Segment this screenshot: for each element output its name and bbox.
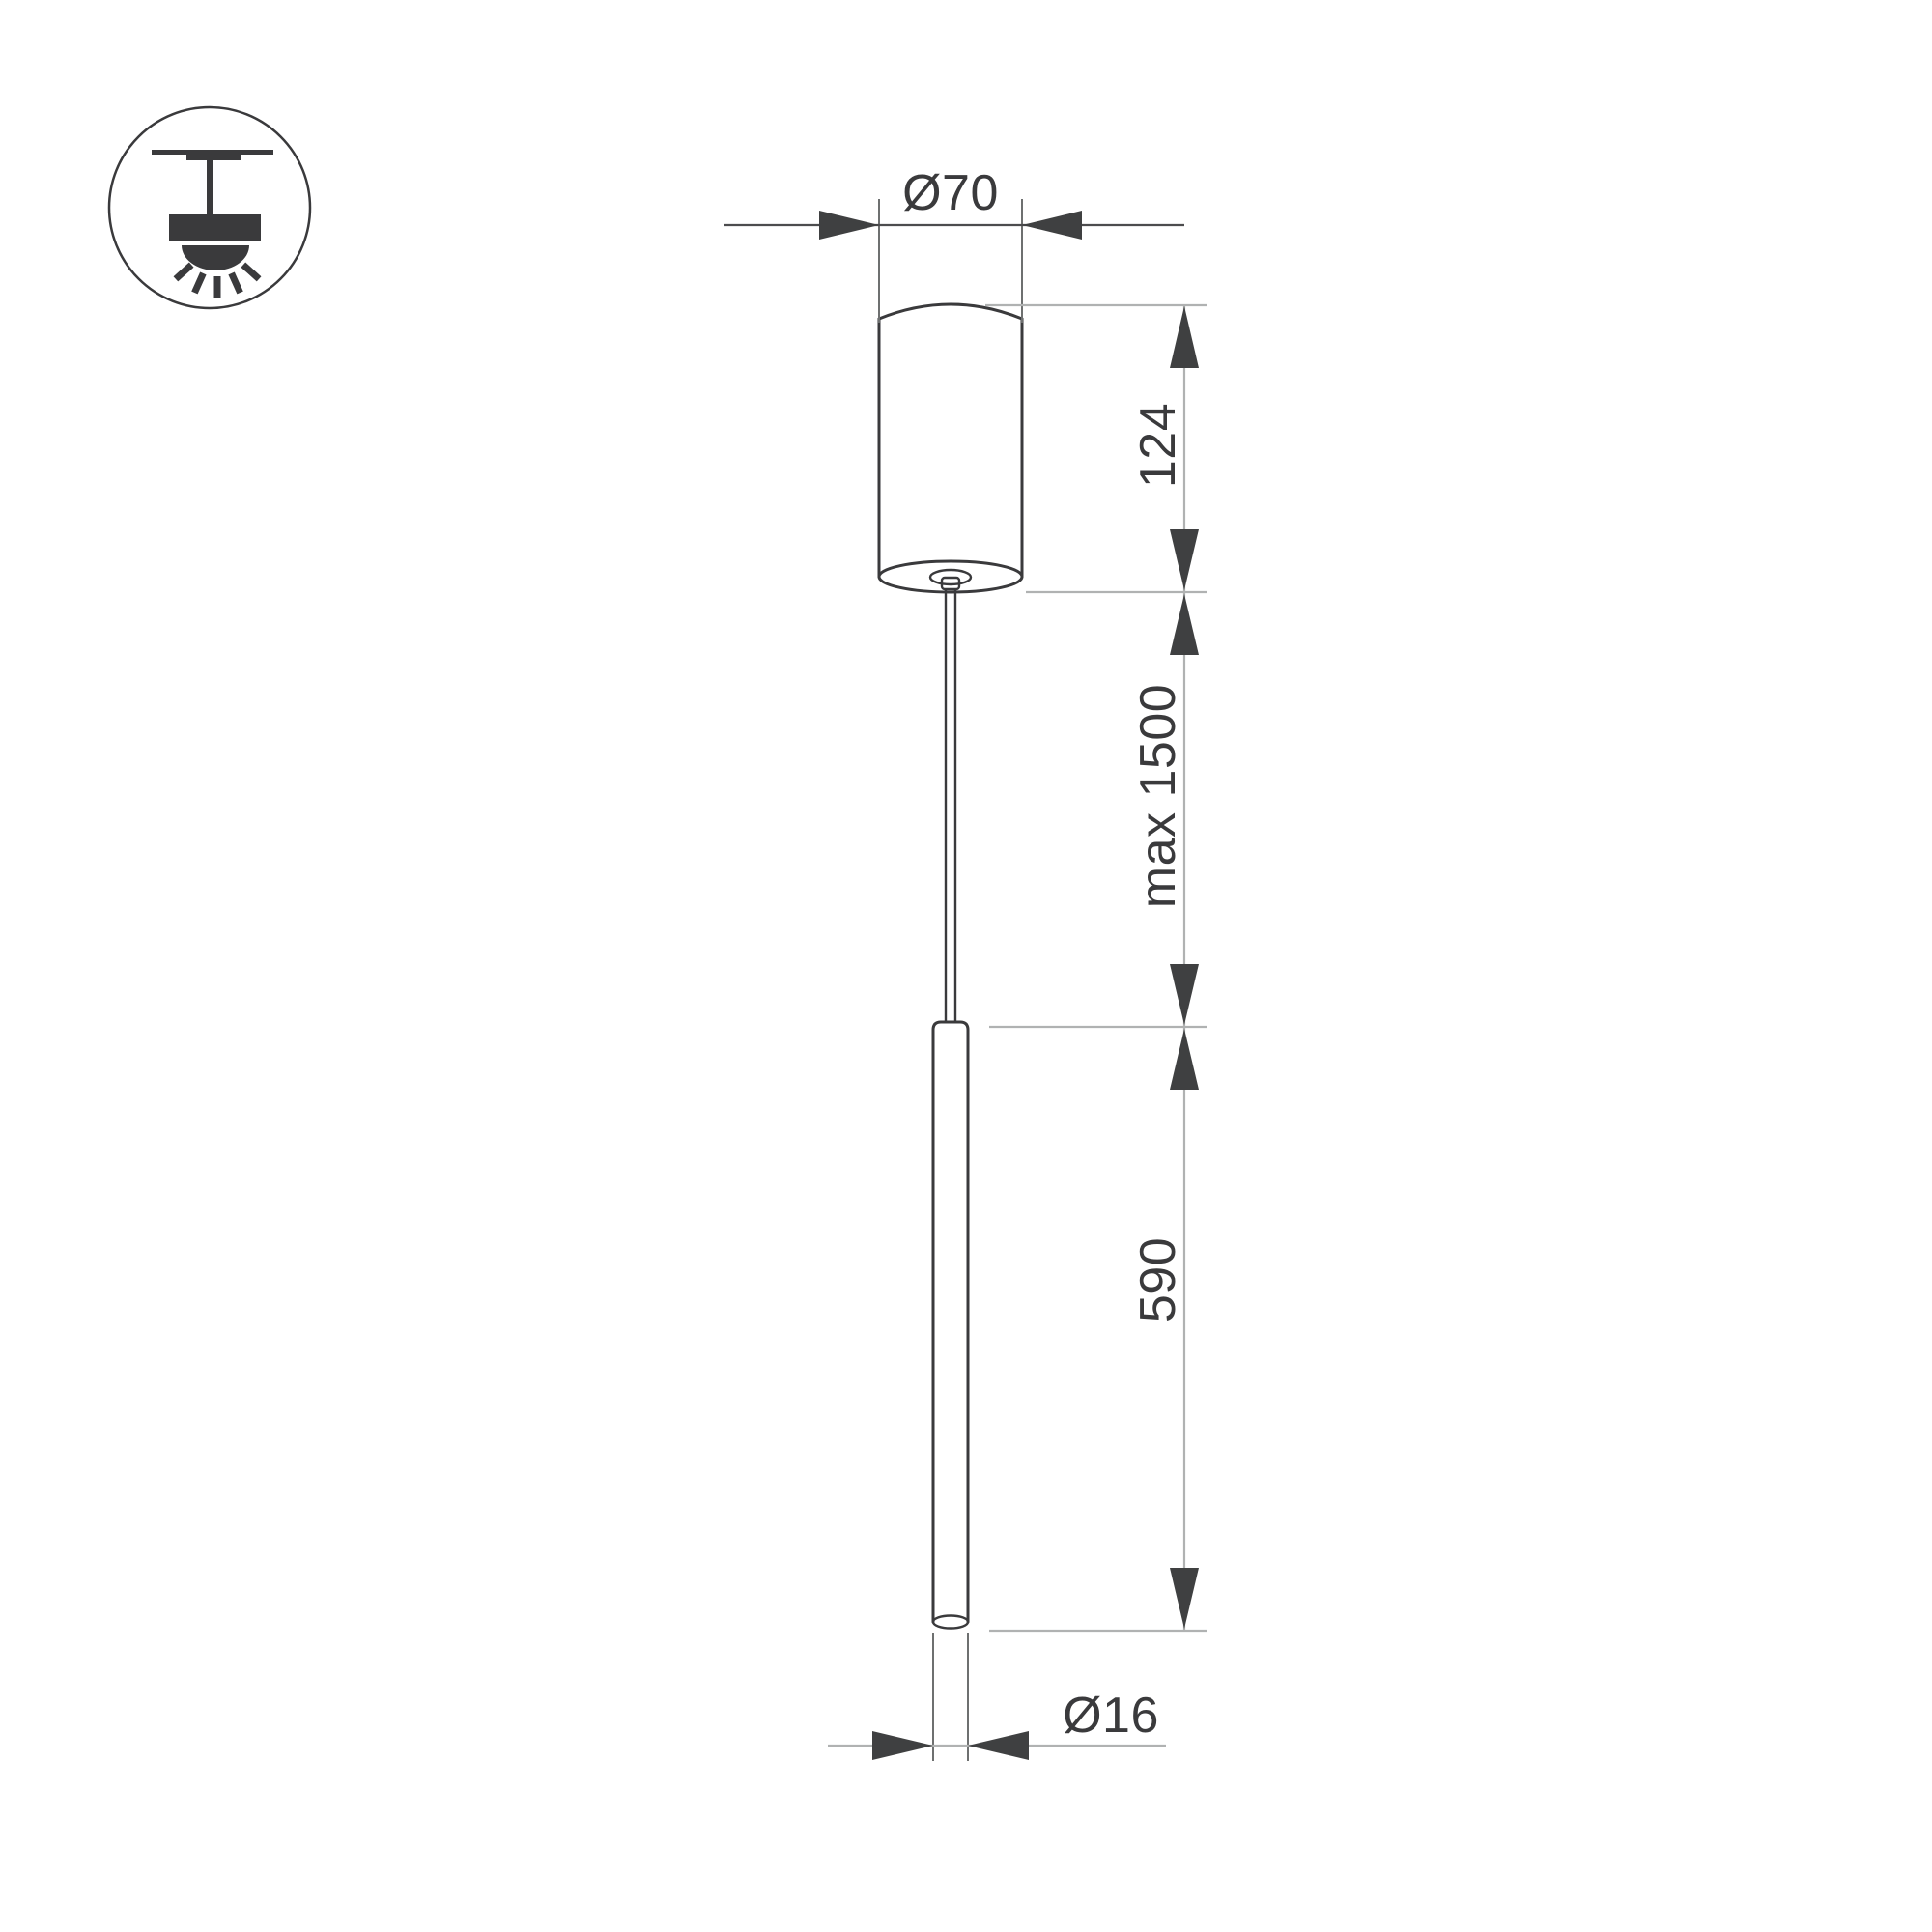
canopy-diameter-label: Ø70 [902, 165, 999, 221]
technical-drawing-canvas: Ø70 124 max 1500 590 [0, 0, 1932, 1932]
tube-length-label: 590 [1130, 1237, 1186, 1322]
icon-mount-plate [186, 153, 241, 160]
icon-pendant-stem [207, 158, 213, 214]
tube-diameter-label: Ø16 [1063, 1688, 1159, 1744]
technical-drawing-page: Ø70 124 max 1500 590 [0, 0, 1932, 1932]
suspension-length-label: max 1500 [1130, 684, 1186, 908]
page-background [0, 0, 1932, 1932]
icon-lamp-body [169, 214, 261, 241]
canopy-height-label: 124 [1130, 403, 1186, 488]
